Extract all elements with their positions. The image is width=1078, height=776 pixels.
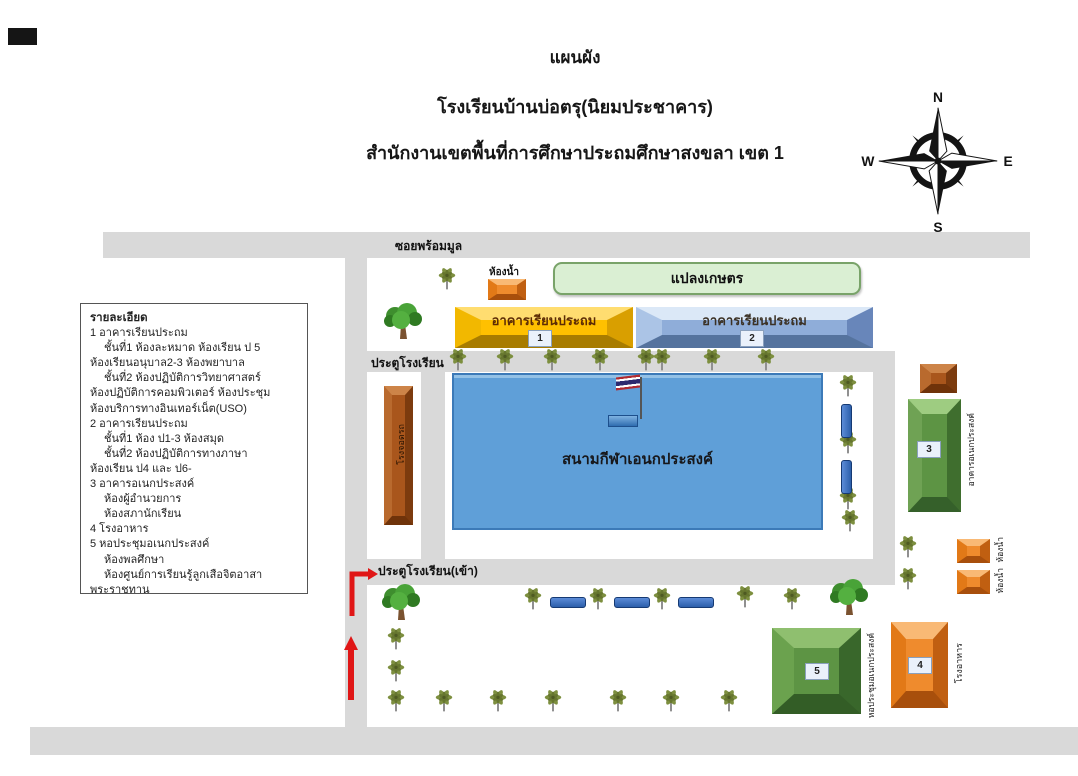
legend-line: พระราชทาน [90,583,298,598]
field-label: สนามกีฬาเอนกประสงค์ [454,447,821,471]
bench-icon [678,597,714,608]
building-4-side-label: โรงอาหาร [952,643,966,683]
legend-line: ห้องสภานักเรียน [90,507,298,522]
tree-icon [590,349,610,372]
compass-e-label: E [1003,153,1012,169]
tree-icon [898,536,918,559]
building-3-number: 3 [917,441,941,458]
gate-top-label: ประตูโรงเรียน [371,354,444,373]
tree-icon [661,690,681,713]
legend-lines: 1 อาคารเรียนประถมชั้นที่1 ห้องละหมาด ห้อ… [90,326,298,598]
path-parking-side [421,372,445,559]
building-5: 5 [772,628,861,714]
legend-line: ห้องเรียน ป4 และ ป6- [90,462,298,477]
road-bottom [30,727,1078,755]
school-map-page: แผนผัง โรงเรียนบ้านบ่อตรุ(นิยมประชาคาร) … [0,0,1078,776]
legend-title: รายละเอียด [90,311,298,326]
tree-icon [838,375,858,398]
tree-icon [437,268,457,291]
toilet-right-2 [957,570,990,594]
bench-icon [841,404,852,438]
tree-icon [448,349,468,372]
tree-icon [542,349,562,372]
tree-icon [608,690,628,713]
legend-line: ห้องปฏิบัติการคอมพิวเตอร์ ห้องประชุม [90,386,298,401]
legend-line: ห้องบริการทางอินเทอร์เน็ต(USO) [90,402,298,417]
tree-icon [652,588,672,611]
tree-icon [702,349,722,372]
tree-icon [543,690,563,713]
tree-icon [826,578,872,616]
tree-icon [719,690,739,713]
legend-line: ชั้นที่1 ห้อง ป1-3 ห้องสมุด [90,432,298,447]
tree-icon [840,510,860,533]
bench-icon [841,460,852,494]
tree-icon [386,660,406,683]
tree-icon [898,568,918,591]
building-5-side-label: หอประชุมอเนกประสงค์ [864,633,878,718]
building-3-side-label: อาคารอเนกประสงค์ [964,413,978,486]
corner-mark [8,28,37,45]
compass-w-label: W [861,153,875,169]
legend-line: ห้องศูนย์การเรียนรู้ลูกเสือจิตอาสา [90,568,298,583]
road-top-soi [103,232,1030,258]
building-4-number: 4 [908,657,932,674]
toilet-right-1 [957,539,990,563]
legend-line: ชั้นที่1 ห้องละหมาด ห้องเรียน ป 5 [90,341,298,356]
building-2-number: 2 [740,330,764,347]
toilet-right-1-label: ห้องน้ำ [993,537,1007,562]
tree-icon [488,690,508,713]
sports-field: สนามกีฬาเอนกประสงค์ [452,373,823,530]
legend-box: รายละเอียด 1 อาคารเรียนประถมชั้นที่1 ห้อ… [80,303,308,594]
soi-label: ซอยพร้อมมูล [395,237,462,256]
building-1-number: 1 [528,330,552,347]
agriculture-plot: แปลงเกษตร [553,262,861,295]
compass-rose-icon: N S W E [856,88,1020,236]
tree-icon [434,690,454,713]
building-2: อาคารเรียนประถม 2 [636,307,873,348]
bench-icon [614,597,650,608]
legend-line: 4 โรงอาหาร [90,522,298,537]
legend-line: ห้องพลศึกษา [90,553,298,568]
legend-line: 1 อาคารเรียนประถม [90,326,298,341]
brown-shed [920,364,957,393]
compass-n-label: N [933,89,943,105]
tree-icon [756,349,776,372]
tree-icon [523,588,543,611]
legend-line: ห้องเรียนอนุบาล2-3 ห้องพยาบาล [90,356,298,371]
road-internal-top [367,351,895,372]
tree-icon [652,349,672,372]
parking-label: โรงจอดรถ [394,424,408,465]
toilet-top-building [488,279,526,300]
tree-icon [386,628,406,651]
parking-building: โรงจอดรถ [384,386,413,525]
toilet-top-label: ห้องน้ำ [489,265,519,280]
tree-icon [735,586,755,609]
building-5-number: 5 [805,663,829,680]
legend-line: ห้องผู้อำนวยการ [90,492,298,507]
bench-icon [550,597,586,608]
tree-icon [386,690,406,713]
road-right-vertical [873,351,895,585]
legend-line: ชั้นที่2 ห้องปฏิบัติการวิทยาศาสตร์ [90,371,298,386]
tree-icon [588,588,608,611]
legend-line: 3 อาคารอเนกประสงค์ [90,477,298,492]
toilet-right-2-label: ห้องน้ำ [993,568,1007,593]
flag-pole [640,377,642,419]
tree-icon [380,302,426,340]
legend-line: ชั้นที่2 ห้องปฏิบัติการทางภาษา [90,447,298,462]
legend-line: 5 หอประชุมอเนกประสงค์ [90,537,298,552]
gate-bottom-label: ประตูโรงเรียน(เข้า) [378,562,478,581]
tree-icon [378,583,424,621]
tree-icon [782,588,802,611]
legend-line: 2 อาคารเรียนประถม [90,417,298,432]
tree-icon [495,349,515,372]
building-1: อาคารเรียนประถม 1 [455,307,633,348]
flag-stand [608,415,638,427]
building-4: 4 [891,622,948,708]
building-3: 3 [908,399,961,512]
page-title: แผนผัง [115,44,1035,71]
route-arrow-icon [342,634,362,704]
